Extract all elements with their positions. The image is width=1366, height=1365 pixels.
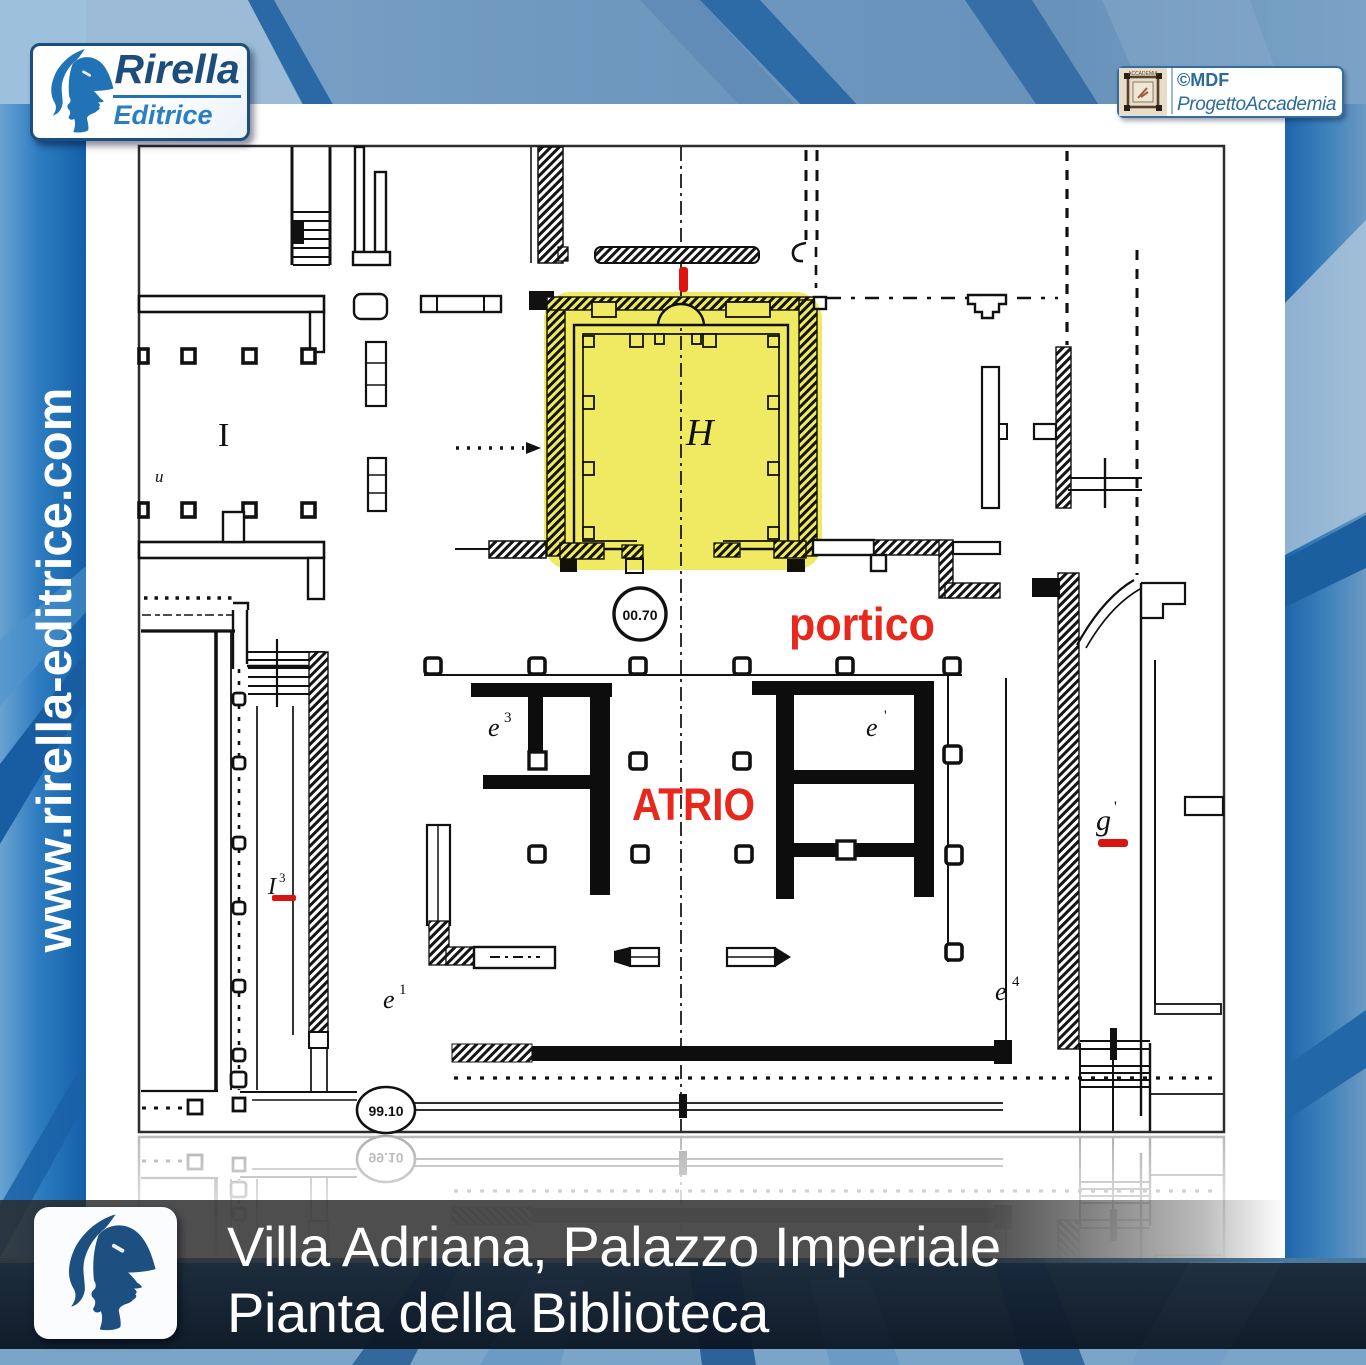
svg-text:ACCADEMIA: ACCADEMIA <box>1128 71 1158 77</box>
